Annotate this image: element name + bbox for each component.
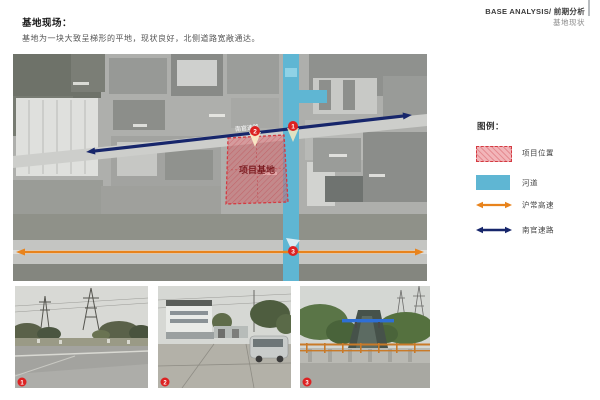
site-photo-2: 2 bbox=[158, 286, 291, 388]
legend-item-label: 南官速路 bbox=[522, 225, 554, 236]
legend-item-road: 南官速路 bbox=[476, 222, 596, 238]
project-site-overlay: 项目基地 bbox=[226, 135, 288, 204]
legend-item-label: 沪常高速 bbox=[522, 200, 554, 211]
site-photo-1: 1 bbox=[15, 286, 148, 388]
legend-item-label: 项目位置 bbox=[522, 148, 554, 159]
site-photo-3: 3 bbox=[300, 286, 430, 388]
site-photo-1-image: 1 bbox=[15, 286, 148, 388]
orange-double-arrow-icon bbox=[476, 199, 512, 211]
map-marker-2-number: 2 bbox=[253, 128, 257, 135]
legend-item-river: 河道 bbox=[476, 175, 596, 191]
legend-item-expressway: 沪常高速 bbox=[476, 197, 596, 213]
satellite-map-canvas: 项目基地 南官速路 1 2 3 bbox=[13, 54, 427, 281]
page-title: 基地现场： bbox=[22, 15, 72, 29]
header-english-title: BASE ANALYSIS/ 前期分析 bbox=[485, 6, 585, 17]
satellite-map: 项目基地 南官速路 1 2 3 bbox=[13, 54, 427, 281]
header-subtitle: 基地现状 bbox=[553, 17, 585, 28]
project-site-swatch bbox=[476, 146, 512, 162]
map-marker-1-number: 1 bbox=[291, 123, 295, 130]
map-marker-3-number: 3 bbox=[291, 248, 295, 255]
header-rule bbox=[588, 0, 590, 16]
legend-item-project-site: 项目位置 bbox=[476, 145, 596, 161]
legend-item-label: 河道 bbox=[522, 178, 538, 189]
legend-title: 图例： bbox=[477, 120, 504, 132]
project-site-label: 项目基地 bbox=[239, 164, 275, 175]
site-description: 基地为一块大致呈梯形的平地，现状良好，北侧道路宽敞通达。 bbox=[22, 33, 260, 44]
site-photo-2-image: 2 bbox=[158, 286, 291, 388]
river-swatch bbox=[476, 175, 510, 190]
navy-double-arrow-icon bbox=[476, 224, 512, 236]
site-photo-3-image: 3 bbox=[300, 286, 430, 388]
